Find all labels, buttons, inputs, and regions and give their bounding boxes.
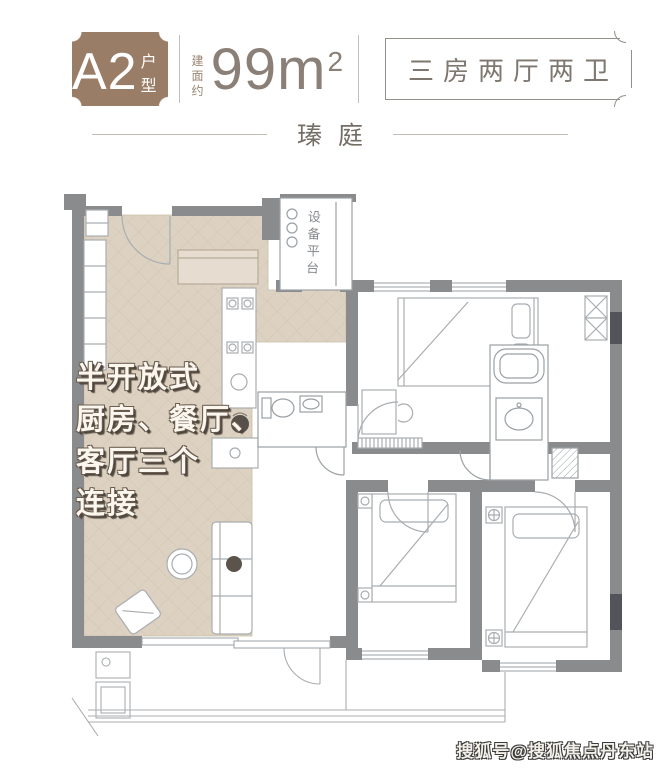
header-divider-2 — [358, 35, 359, 103]
bedroom-bottom-middle — [358, 492, 456, 602]
chair-icon — [398, 404, 413, 422]
unit-badge: A2 户型 — [72, 32, 169, 106]
unit-suffix: 户型 — [141, 48, 169, 96]
spec-box-notch-top-right — [620, 37, 633, 50]
balcony-railing — [88, 710, 505, 722]
equipment-vent-icon — [287, 237, 297, 247]
spec-box-notch-bottom-right — [620, 88, 633, 101]
area-group: 建面 约 99m2 — [191, 36, 344, 103]
equipment-vent-icon — [287, 209, 297, 219]
sofa-cushion-icon — [226, 556, 242, 572]
bathroom-door-arc — [460, 450, 490, 480]
lamp-icon — [361, 591, 369, 599]
bedroom-top-right — [358, 296, 607, 448]
header: A2 户型 建面 约 99m2 三房两厅两卫 — [72, 30, 632, 108]
area-superscript: 2 — [327, 46, 344, 77]
project-line-left — [92, 134, 267, 135]
equipment-vent-icon — [287, 223, 297, 233]
area-prefix-line1: 建面 — [191, 54, 205, 84]
spec-box: 三房两厅两卫 — [385, 38, 632, 100]
area-prefix: 建面 约 — [191, 54, 205, 99]
project-row: 瑧庭 — [92, 116, 568, 152]
pillow-icon — [380, 500, 448, 522]
toilet-icon — [272, 399, 294, 417]
equipment-room-label: 设备平台 — [302, 210, 323, 279]
bedroom-bottom-right — [486, 492, 587, 647]
lamp-icon — [361, 497, 369, 505]
annotation-text: 半开放式 厨房、餐厅、 客厅三个 连接 — [76, 357, 262, 525]
hatch-cabinet — [552, 448, 578, 478]
pillow-icon — [512, 304, 530, 338]
spec-text: 三房两厅两卫 — [399, 51, 618, 88]
bathroom-door-arc — [316, 447, 344, 475]
header-divider-1 — [179, 35, 180, 103]
laundry-sink — [96, 652, 130, 678]
pillow-icon — [513, 514, 579, 538]
watermark-text: 搜狐号@搜狐焦点丹东站 — [456, 737, 654, 762]
kitchen-island — [178, 250, 258, 284]
balcony-door-arc — [284, 648, 320, 684]
area-prefix-line2: 约 — [191, 84, 205, 99]
project-line-right — [393, 134, 568, 135]
balcony-gate — [72, 698, 98, 736]
project-name: 瑧庭 — [281, 116, 379, 152]
unit-name: A2 — [72, 48, 138, 96]
kitchen-cabinet — [84, 240, 106, 370]
balcony — [72, 648, 505, 736]
desk — [362, 390, 396, 434]
sofa — [212, 522, 252, 634]
floorplan-page: A2 户型 建面 约 99m2 三房两厅两卫 瑧庭 — [0, 0, 660, 769]
area-value: 99m2 — [211, 36, 344, 103]
toilet-tank — [262, 398, 271, 418]
bathroom-center — [258, 392, 346, 475]
